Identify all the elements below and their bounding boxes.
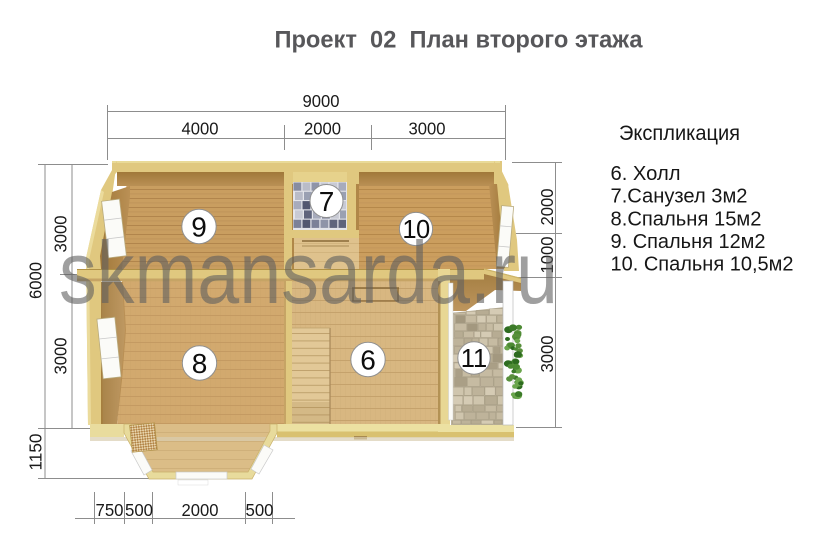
svg-text:6000: 6000: [26, 262, 46, 299]
svg-text:500: 500: [246, 500, 274, 520]
svg-text:3000: 3000: [537, 335, 557, 372]
svg-text:9000: 9000: [303, 91, 340, 111]
svg-text:750: 750: [96, 500, 124, 520]
svg-text:4000: 4000: [182, 119, 219, 139]
svg-text:3000: 3000: [51, 337, 71, 374]
svg-text:11: 11: [461, 345, 487, 373]
svg-text:2000: 2000: [304, 119, 341, 139]
svg-text:Экспликация: Экспликация: [619, 122, 740, 145]
svg-text:3000: 3000: [409, 119, 446, 139]
svg-text:7: 7: [319, 186, 335, 217]
svg-text:6. Холл: 6. Холл: [611, 162, 681, 185]
svg-text:6: 6: [360, 345, 376, 376]
svg-text:9. Спальня 12м2: 9. Спальня 12м2: [611, 230, 766, 253]
svg-text:2000: 2000: [182, 500, 219, 520]
svg-text:8: 8: [192, 348, 208, 379]
svg-text:Проект 02 План второго этажа: Проект 02 План второго этажа: [275, 27, 644, 54]
svg-text:2000: 2000: [537, 188, 557, 225]
svg-text:1150: 1150: [26, 433, 46, 470]
svg-text:10. Спальня 10,5м2: 10. Спальня 10,5м2: [611, 253, 794, 276]
svg-text:7.Санузел 3м2: 7.Санузел 3м2: [611, 185, 748, 208]
svg-text:8.Спальня 15м2: 8.Спальня 15м2: [611, 208, 762, 231]
svg-text:500: 500: [125, 500, 153, 520]
svg-text:skmansarda.ru: skmansarda.ru: [59, 223, 558, 322]
